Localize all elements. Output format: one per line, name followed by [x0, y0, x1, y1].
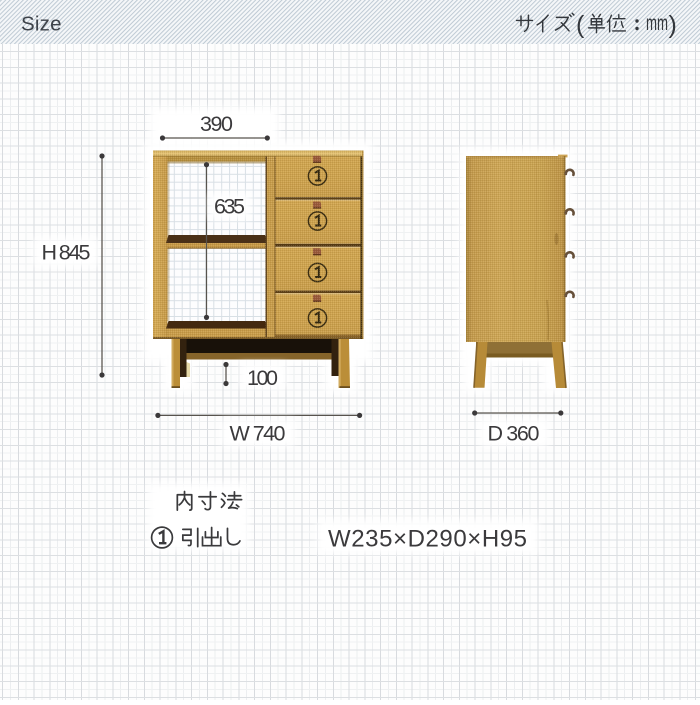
svg-text:W235×D290×H95: W235×D290×H95: [328, 526, 527, 553]
svg-text:D 360: D 360: [488, 422, 540, 446]
svg-text:H 845: H 845: [42, 241, 91, 265]
svg-text:(: (: [576, 11, 585, 39]
svg-text:Size: Size: [21, 13, 63, 36]
svg-text:390: 390: [200, 112, 233, 136]
svg-text:635: 635: [214, 195, 245, 219]
svg-text:100: 100: [247, 366, 278, 390]
svg-text:mm: mm: [646, 12, 668, 35]
svg-text:W 740: W 740: [230, 422, 286, 446]
svg-text:): ): [669, 11, 677, 39]
